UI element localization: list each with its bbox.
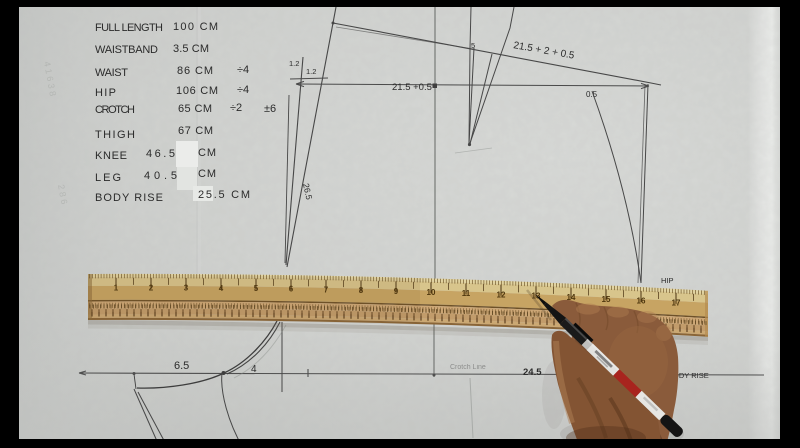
- svg-text:65 CM: 65 CM: [178, 103, 212, 115]
- svg-text:21.5 +0.5: 21.5 +0.5: [392, 82, 432, 93]
- svg-text:100 CM: 100 CM: [173, 21, 218, 33]
- svg-text:86 CM: 86 CM: [177, 65, 213, 77]
- svg-text:0.5: 0.5: [586, 90, 598, 99]
- svg-text:25.5 CM: 25.5 CM: [198, 189, 250, 201]
- svg-text:±6: ±6: [264, 103, 276, 115]
- svg-text:4: 4: [251, 364, 257, 375]
- svg-text:24.5: 24.5: [523, 367, 542, 378]
- svg-text:1.2: 1.2: [289, 59, 299, 68]
- svg-text:12: 12: [497, 290, 506, 299]
- svg-text:46.5: 46.5: [146, 148, 175, 160]
- svg-text:CM: CM: [198, 168, 216, 180]
- svg-text:THIGH: THIGH: [95, 129, 135, 141]
- svg-text:67 CM: 67 CM: [178, 125, 213, 137]
- svg-text:17: 17: [672, 298, 681, 307]
- svg-text:Crotch Line: Crotch Line: [450, 364, 486, 371]
- svg-text:FULL LENGTH: FULL LENGTH: [95, 22, 163, 34]
- svg-text:10: 10: [427, 288, 436, 297]
- svg-text:16: 16: [637, 297, 646, 306]
- svg-text:CROTCH: CROTCH: [95, 104, 135, 116]
- svg-text:5: 5: [471, 41, 475, 50]
- svg-text:÷4: ÷4: [237, 64, 249, 76]
- svg-text:11: 11: [462, 289, 471, 298]
- svg-text:HIP: HIP: [95, 87, 116, 99]
- svg-text:WAISTBAND: WAISTBAND: [95, 44, 158, 56]
- svg-text:÷2: ÷2: [230, 102, 242, 114]
- svg-text:1.2: 1.2: [306, 67, 316, 76]
- svg-text:CM: CM: [198, 147, 216, 159]
- svg-text:6.5: 6.5: [174, 360, 189, 372]
- svg-text:BODY RISE: BODY RISE: [95, 192, 163, 204]
- svg-text:KNEE: KNEE: [95, 150, 127, 162]
- svg-text:LEG: LEG: [95, 172, 121, 184]
- svg-text:3.5 CM: 3.5 CM: [173, 43, 209, 55]
- svg-text:HIP: HIP: [661, 276, 674, 285]
- svg-text:WAIST: WAIST: [95, 67, 128, 79]
- svg-text:÷4: ÷4: [237, 84, 249, 96]
- svg-text:15: 15: [602, 295, 611, 304]
- svg-text:106 CM: 106 CM: [176, 85, 218, 97]
